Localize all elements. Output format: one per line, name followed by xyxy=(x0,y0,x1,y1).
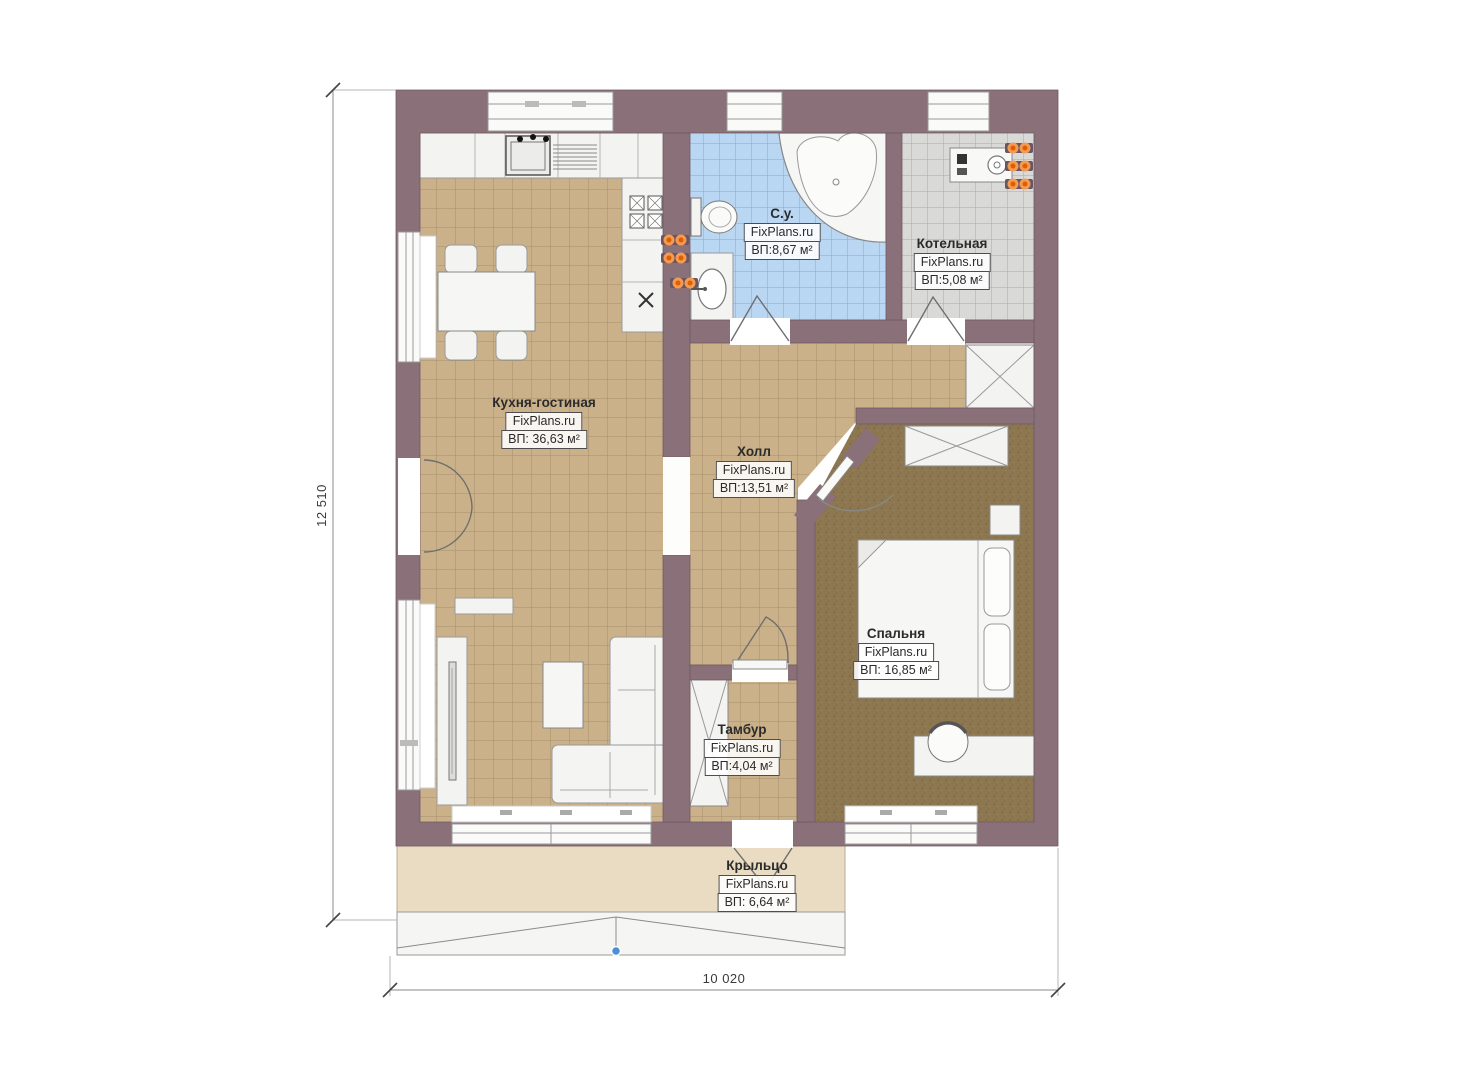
bathroom-door-opening xyxy=(730,318,790,345)
room-name: Крыльцо xyxy=(718,858,797,873)
room-name: Тамбур xyxy=(704,722,781,737)
radiator-indicator xyxy=(661,253,689,264)
nightstand xyxy=(990,505,1020,535)
room-source: FixPlans.ru xyxy=(506,412,583,431)
porch-steps xyxy=(397,912,845,955)
room-label-boiler: Котельная FixPlans.ru ВП:5,08 м² xyxy=(914,236,991,290)
window xyxy=(398,600,420,790)
room-name: С.у. xyxy=(744,206,821,221)
window-sill xyxy=(845,806,977,822)
washbasin xyxy=(691,253,733,325)
closet-hall xyxy=(966,345,1034,408)
room-source: FixPlans.ru xyxy=(704,739,781,758)
bench xyxy=(455,598,513,614)
chair xyxy=(496,245,527,273)
tambour-door-leaf xyxy=(733,660,787,669)
entry-point-marker xyxy=(612,947,621,956)
room-label-hall: Холл FixPlans.ru ВП:13,51 м² xyxy=(713,444,795,498)
room-area: ВП: 6,64 м² xyxy=(718,893,797,912)
coffee-table xyxy=(543,662,583,728)
room-name: Холл xyxy=(713,444,795,459)
floor-plan-page: Кухня-гостиная FixPlans.ru ВП: 36,63 м² … xyxy=(0,0,1474,1080)
window-sill xyxy=(420,236,436,358)
window-sill xyxy=(420,604,435,788)
room-label-tambour: Тамбур FixPlans.ru ВП:4,04 м² xyxy=(704,722,781,776)
radiator-indicator xyxy=(661,235,689,246)
room-area: ВП: 16,85 м² xyxy=(853,661,939,680)
chair xyxy=(496,331,527,360)
dimension-height-label: 12 510 xyxy=(314,484,329,527)
passage-kitchen-hall xyxy=(663,457,690,555)
wall-kitchen-hall-lower xyxy=(663,555,690,822)
entrance-opening xyxy=(732,820,793,848)
radiator-indicator xyxy=(1005,143,1033,154)
wall-kitchen-hall-upper xyxy=(663,133,690,457)
boiler-door-opening xyxy=(907,318,965,345)
room-source: FixPlans.ru xyxy=(858,643,935,662)
room-label-bathroom: С.у. FixPlans.ru ВП:8,67 м² xyxy=(744,206,821,260)
pillow xyxy=(984,624,1010,690)
room-label-bedroom: Спальня FixPlans.ru ВП: 16,85 м² xyxy=(853,626,939,680)
boiler-unit xyxy=(950,148,1012,182)
wall-bedroom-left xyxy=(797,500,815,822)
wall-bath-boiler xyxy=(886,133,902,320)
room-source: FixPlans.ru xyxy=(719,875,796,894)
room-source: FixPlans.ru xyxy=(716,461,793,480)
window xyxy=(928,92,989,131)
room-name: Котельная xyxy=(914,236,991,251)
chair xyxy=(445,245,477,273)
pillow xyxy=(984,548,1010,616)
room-area: ВП:8,67 м² xyxy=(744,241,819,260)
floor-plan-canvas xyxy=(0,0,1474,1080)
room-name: Спальня xyxy=(853,626,939,641)
room-name: Кухня-гостиная xyxy=(492,395,595,410)
window xyxy=(727,92,782,131)
chair xyxy=(445,331,477,360)
radiator-indicator xyxy=(670,278,698,289)
closet-bedroom xyxy=(905,426,1008,466)
room-source: FixPlans.ru xyxy=(914,253,991,272)
room-label-kitchen-living: Кухня-гостиная FixPlans.ru ВП: 36,63 м² xyxy=(492,395,595,449)
radiator-indicator xyxy=(1005,161,1033,172)
room-area: ВП: 36,63 м² xyxy=(501,430,587,449)
tv xyxy=(449,662,456,780)
dining-table xyxy=(438,272,535,331)
drainer xyxy=(553,145,597,169)
dimension-width-label: 10 020 xyxy=(703,971,746,986)
french-door-opening xyxy=(398,458,420,555)
room-source: FixPlans.ru xyxy=(744,223,821,242)
wall-bedroom-top xyxy=(856,408,1034,424)
room-area: ВП:13,51 м² xyxy=(713,479,795,498)
room-area: ВП:5,08 м² xyxy=(914,271,989,290)
window xyxy=(488,92,613,131)
radiator-indicator xyxy=(1005,179,1033,190)
room-label-porch: Крыльцо FixPlans.ru ВП: 6,64 м² xyxy=(718,858,797,912)
window xyxy=(398,232,420,362)
room-area: ВП:4,04 м² xyxy=(704,757,779,776)
